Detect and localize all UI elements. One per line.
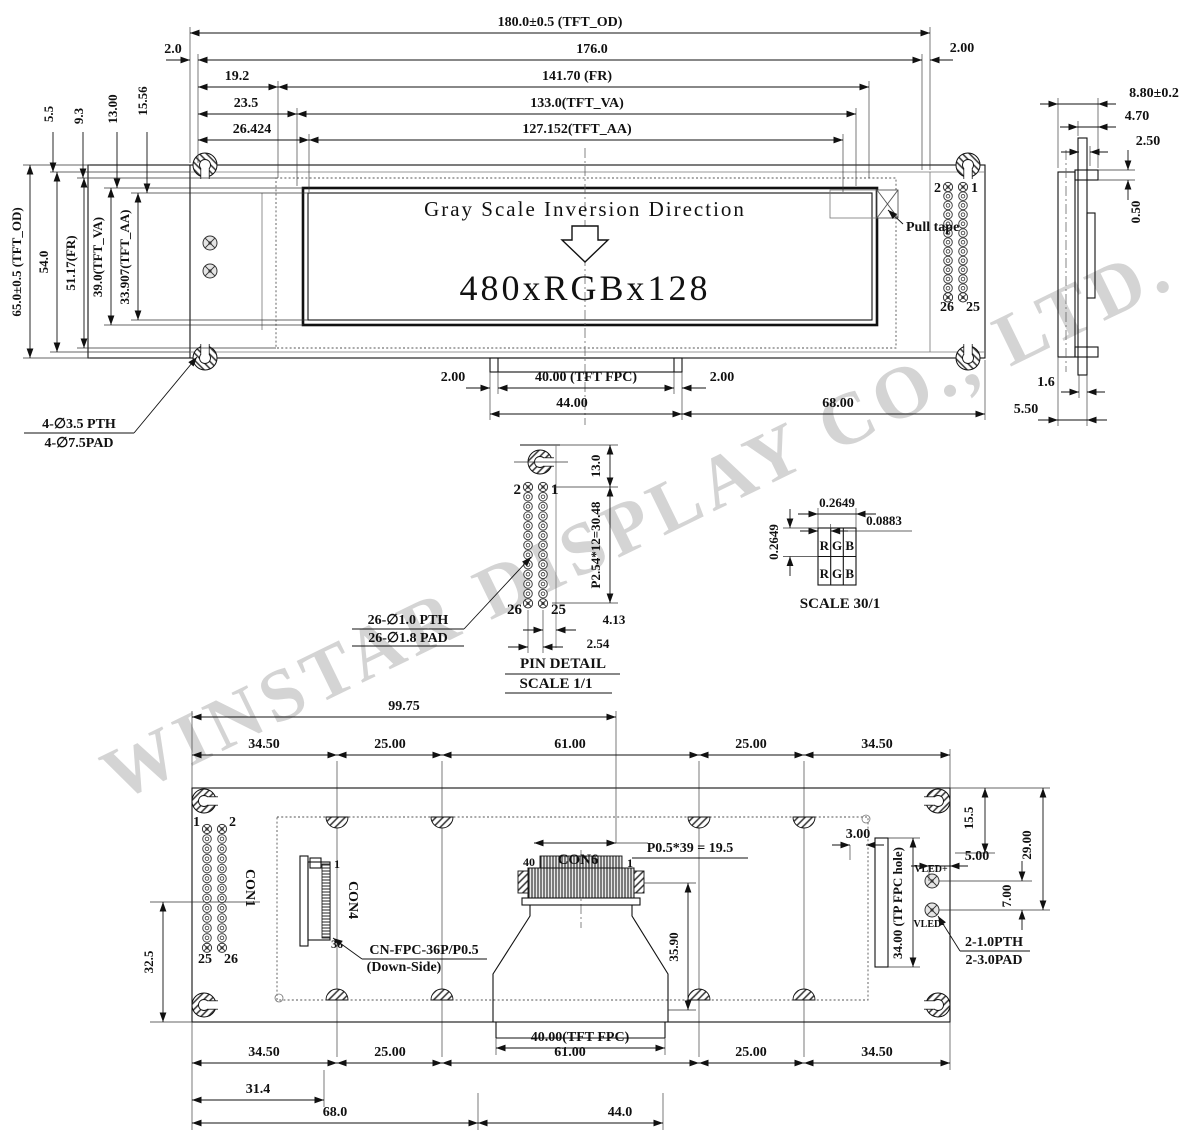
pin-hole-icon <box>959 229 968 238</box>
pin-hole-icon <box>539 522 548 531</box>
dim-label: 5.5 <box>41 105 56 122</box>
pin-hole-icon <box>539 492 548 501</box>
pin-hole-icon <box>959 238 968 247</box>
dim-label: 2.0 <box>164 42 182 57</box>
dim-label: 4.70 <box>1125 109 1150 124</box>
screw-icon <box>203 236 217 250</box>
pin-hole-icon <box>218 904 227 913</box>
dim-label: 23.5 <box>234 96 259 111</box>
pin-number: 1 <box>551 482 559 498</box>
dim-label: 61.00 <box>554 737 586 752</box>
pin-number: 25 <box>966 300 980 315</box>
pin-hole-icon <box>959 201 968 210</box>
pin-hole-icon <box>203 854 212 863</box>
pin-number: 26 <box>224 952 238 967</box>
dim-label: 0.50 <box>1128 201 1143 224</box>
pin-hole-icon <box>203 864 212 873</box>
callout-label: (Down-Side) <box>367 960 442 975</box>
pin-hole-icon <box>959 210 968 219</box>
dim-label: 51.17(FR) <box>63 235 78 290</box>
pin-hole-icon <box>944 201 953 210</box>
subpixel-label: R <box>820 566 830 581</box>
pin-hole-icon <box>959 220 968 229</box>
pin-number: 25 <box>551 602 566 618</box>
dim-label: 3.00 <box>846 827 871 842</box>
pin-hole-icon <box>959 247 968 256</box>
subpixel-label: B <box>845 538 854 553</box>
dim-label: 40.00(TFT FPC) <box>531 1030 630 1045</box>
dim-label: 54.0 <box>36 251 51 274</box>
dim-label: 5.00 <box>965 849 990 864</box>
pin-number: 1 <box>334 857 340 871</box>
dim-label: 2.00 <box>441 370 466 385</box>
dim-label: 2.54 <box>587 636 610 651</box>
dim-label: 61.00 <box>554 1045 586 1060</box>
pin-hole-icon <box>958 182 967 191</box>
pin-hole-icon <box>524 560 533 569</box>
pin-hole-icon <box>203 934 212 943</box>
dim-label: 5.50 <box>1014 402 1039 417</box>
pin-hole-icon <box>539 551 548 560</box>
dim-label: 29.00 <box>1019 830 1034 859</box>
dim-label: 35.90 <box>666 932 681 961</box>
detail-scale: SCALE 1/1 <box>520 676 593 692</box>
pin-hole-icon <box>523 482 532 491</box>
pin-hole-icon <box>524 522 533 531</box>
dim-label: 25.00 <box>374 1045 406 1060</box>
pin-hole-icon <box>539 531 548 540</box>
tft-module-dimension-drawing: WINSTAR DISPLAY CO., LTD. <box>0 0 1200 1132</box>
dim-label: 2.00 <box>710 370 735 385</box>
vled-minus-hole-icon <box>925 903 939 917</box>
dim-label: 44.0 <box>608 1105 633 1120</box>
dim-label: P2.54*12=30.48 <box>588 501 603 588</box>
pin-hole-icon <box>944 256 953 265</box>
pin-hole-icon <box>203 924 212 933</box>
dim-label: 26.424 <box>233 122 272 137</box>
pin-hole-icon <box>959 275 968 284</box>
dim-label: 19.2 <box>225 69 250 84</box>
pin-hole-icon <box>217 824 226 833</box>
pin-hole-icon <box>538 482 547 491</box>
pin-hole-icon <box>218 884 227 893</box>
subpixel-label: R <box>820 538 830 553</box>
dim-label: 0.0883 <box>866 513 902 528</box>
pin-hole-icon <box>539 502 548 511</box>
connector-label: CON4 <box>345 881 360 919</box>
pin-hole-icon <box>539 541 548 550</box>
pin-hole-icon <box>524 570 533 579</box>
subpixel-label: G <box>832 566 842 581</box>
pin-hole-icon <box>944 266 953 275</box>
pin-hole-icon <box>539 580 548 589</box>
dim-label: 44.00 <box>556 396 588 411</box>
pin-hole-icon <box>218 835 227 844</box>
callout-label: 4-∅3.5 PTH <box>42 417 116 432</box>
dim-label: 25.00 <box>735 737 767 752</box>
pin-hole-icon <box>539 560 548 569</box>
callout-label: 26-∅1.8 PAD <box>368 631 448 646</box>
dim-label: 25.00 <box>374 737 406 752</box>
pin-hole-icon <box>202 824 211 833</box>
vled-minus-label: VLED- <box>913 919 944 930</box>
dim-label: 2.50 <box>1136 134 1161 149</box>
dim-label: 13.0 <box>588 455 603 478</box>
detail-scale: SCALE 30/1 <box>800 596 880 612</box>
subpixel-label: G <box>832 538 842 553</box>
pin-number: 1 <box>971 181 978 196</box>
dim-label: 9.3 <box>71 107 86 124</box>
dim-label: 34.50 <box>248 1045 280 1060</box>
pin-number: 2 <box>229 815 236 830</box>
screen-text-line2: 480xRGBx128 <box>459 268 710 308</box>
pin-hole-icon <box>524 531 533 540</box>
dim-label: 68.0 <box>323 1105 348 1120</box>
connector-label: CON1 <box>242 869 257 907</box>
pin-hole-icon <box>539 570 548 579</box>
dim-label: 34.50 <box>861 1045 893 1060</box>
dim-label: 34.50 <box>248 737 280 752</box>
pin-hole-icon <box>203 835 212 844</box>
pin-hole-icon <box>218 924 227 933</box>
dim-label: 176.0 <box>576 42 608 57</box>
pin-hole-icon <box>944 238 953 247</box>
pin-number: 2 <box>934 181 941 196</box>
pin-hole-icon <box>943 182 952 191</box>
dim-label: 13.00 <box>105 94 120 123</box>
dim-label: 25.00 <box>735 1045 767 1060</box>
pin-hole-icon <box>218 914 227 923</box>
pin-hole-icon <box>203 914 212 923</box>
dim-label: 34.00 (TP FPC hole) <box>890 847 905 959</box>
dim-label: 0.2649 <box>819 495 855 510</box>
dim-label: 2.00 <box>950 41 975 56</box>
dim-label: 1.6 <box>1037 375 1055 390</box>
detail-title: PIN DETAIL <box>520 656 606 672</box>
dim-label: 32.5 <box>141 950 156 973</box>
pin-number: 25 <box>198 952 212 967</box>
pin-hole-icon <box>203 894 212 903</box>
pin-hole-icon <box>944 275 953 284</box>
dim-label: 65.0±0.5 (TFT_OD) <box>9 207 24 316</box>
pin-hole-icon <box>203 904 212 913</box>
dim-label: 99.75 <box>388 699 420 714</box>
vled-plus-hole-icon <box>925 874 939 888</box>
pin-hole-icon <box>218 845 227 854</box>
pin-hole-icon <box>959 256 968 265</box>
pin-hole-icon <box>539 589 548 598</box>
pin-hole-icon <box>203 874 212 883</box>
pin-hole-icon <box>524 551 533 560</box>
pin-number: 2 <box>514 482 522 498</box>
callout-label: 2-1.0PTH <box>965 935 1023 950</box>
dim-label: 8.80±0.2 <box>1129 86 1179 101</box>
screen-text-line1: Gray Scale Inversion Direction <box>424 197 746 221</box>
pin-number: 26 <box>507 602 523 618</box>
pin-hole-icon <box>218 854 227 863</box>
pin-hole-icon <box>524 580 533 589</box>
dim-label: 133.0(TFT_VA) <box>530 96 624 111</box>
pin-hole-icon <box>524 512 533 521</box>
pin-hole-icon <box>218 864 227 873</box>
pull-tape-label: Pull tape <box>906 220 959 235</box>
dim-label: P0.5*39 = 19.5 <box>647 841 734 856</box>
pin-number: 1 <box>193 815 200 830</box>
pin-hole-icon <box>218 894 227 903</box>
pin-hole-icon <box>524 541 533 550</box>
pin-hole-icon <box>944 284 953 293</box>
dim-label: 4.13 <box>603 612 626 627</box>
dim-label: 0.2649 <box>766 524 781 560</box>
dim-label: 7.00 <box>999 885 1014 908</box>
dim-label: 33.907(TFT_AA) <box>117 210 132 305</box>
pin-hole-icon <box>203 884 212 893</box>
pin-hole-icon <box>203 845 212 854</box>
pin-hole-icon <box>539 512 548 521</box>
pin-hole-icon <box>524 502 533 511</box>
dim-label: 39.0(TFT_VA) <box>90 217 105 297</box>
connector-label: CON6 <box>558 852 599 868</box>
pin-hole-icon <box>218 874 227 883</box>
dim-label: 141.70 (FR) <box>542 69 612 84</box>
dim-label: 15.56 <box>135 86 150 116</box>
pin-hole-icon <box>944 247 953 256</box>
pin-hole-icon <box>959 284 968 293</box>
dim-label: 31.4 <box>246 1082 271 1097</box>
pin-hole-icon <box>218 934 227 943</box>
pin-hole-icon <box>523 599 532 608</box>
pin-hole-icon <box>524 589 533 598</box>
pin-number: 26 <box>940 300 954 315</box>
pin-number: 40 <box>523 855 535 869</box>
dim-label: 180.0±0.5 (TFT_OD) <box>498 15 623 30</box>
callout-label: 26-∅1.0 PTH <box>368 613 449 628</box>
dim-label: 40.00 (TFT FPC) <box>535 370 637 385</box>
pin-hole-icon <box>538 599 547 608</box>
pin-hole-icon <box>944 210 953 219</box>
callout-label: CN-FPC-36P/P0.5 <box>369 943 478 958</box>
subpixel-label: B <box>845 566 854 581</box>
dim-label: 68.00 <box>822 396 854 411</box>
pin-hole-icon <box>959 192 968 201</box>
screw-icon <box>203 264 217 278</box>
pin-hole-icon <box>944 192 953 201</box>
dim-label: 127.152(TFT_AA) <box>522 122 632 137</box>
dim-label: 34.50 <box>861 737 893 752</box>
callout-label: 2-3.0PAD <box>966 953 1023 968</box>
callout-label: 4-∅7.5PAD <box>44 436 113 451</box>
pin-hole-icon <box>524 492 533 501</box>
dim-label: 15.5 <box>961 806 976 829</box>
pin-hole-icon <box>959 266 968 275</box>
